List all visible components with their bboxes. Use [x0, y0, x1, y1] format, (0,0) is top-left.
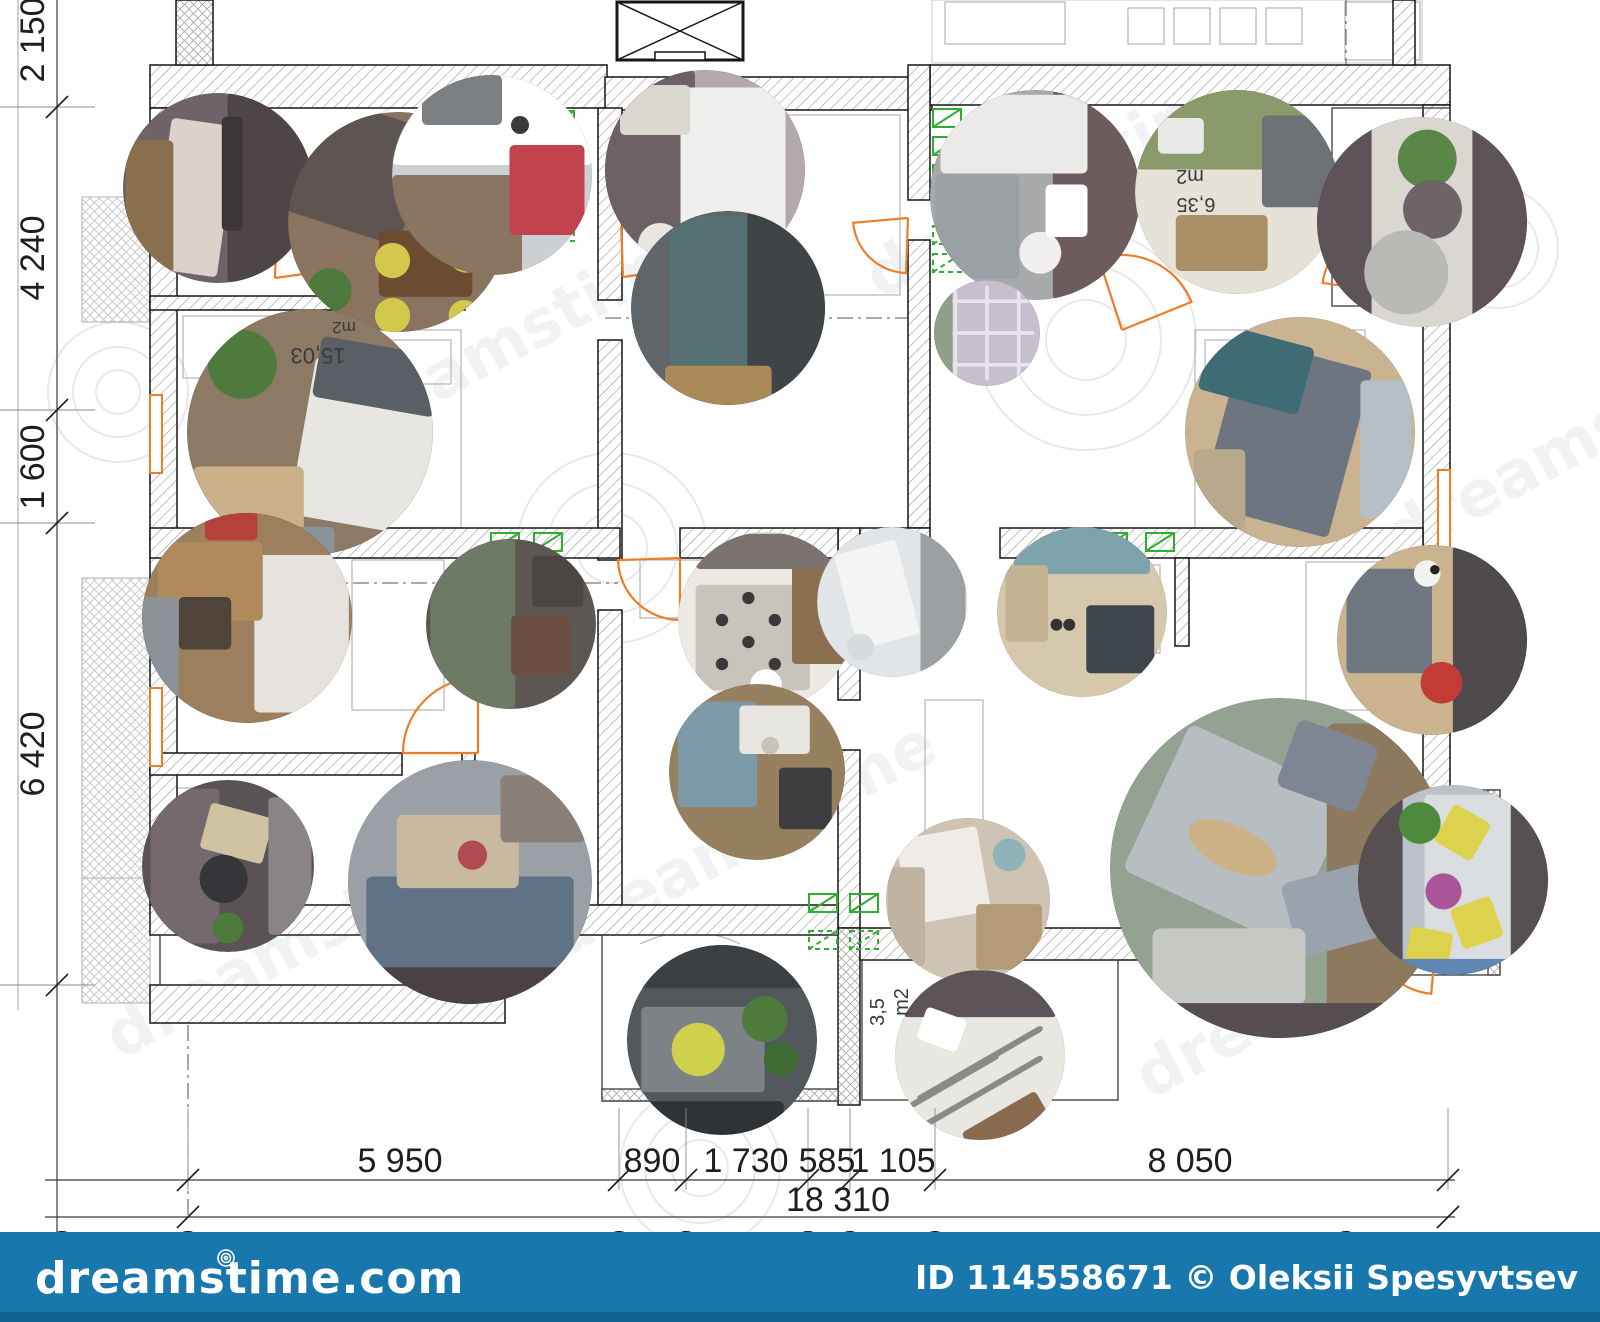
dimension-label-bottom: 8 050 [1147, 1142, 1232, 1180]
dimension-label-bottom: 1 730 [703, 1142, 788, 1180]
dimension-label-bottom: 585 [799, 1142, 856, 1180]
dimension-total-label: 18 310 [786, 1181, 890, 1219]
room-photo-inset-balcony-plant [1309, 117, 1536, 327]
dimension-label-left: 4 240 [14, 215, 52, 300]
dimension-label-bottom: 890 [624, 1142, 681, 1180]
image-credit: ID 114558671 © Oleksii Spesyvtsev [915, 1258, 1578, 1297]
room-photo-inset-kitchen-blue [669, 684, 845, 860]
room-photo-inset-tile-corner [931, 280, 1040, 386]
room-area-label: m2 [891, 988, 913, 1016]
room-photo-inset-hallway-dark [123, 93, 313, 283]
room-photo-inset-bedroom-right [1185, 317, 1415, 547]
room-area-label: 3,5 [867, 998, 889, 1026]
room-area-label: 15,03 [290, 343, 345, 368]
dimension-label-bottom: 5 950 [357, 1142, 442, 1180]
vent-symbol [933, 109, 961, 127]
floorplan-screenshot: dreamstimedreamstimedreamstimedreamstime… [0, 0, 1600, 1322]
floorplan-canvas: dreamstimedreamstimedreamstimedreamstime… [0, 0, 1600, 1322]
dimension-label-left: 2 150 [14, 0, 52, 83]
room-photo-inset-kitchen-white-red [392, 75, 592, 275]
room-area-label: 6,35 [1177, 193, 1216, 215]
room-photo-inset-kids-room [1337, 545, 1529, 735]
room-photo-inset-balcony-terrace-dark [627, 936, 817, 1135]
room-photo-inset-terrace-pergola [895, 970, 1065, 1159]
room-photo-inset-bedroom-beige [886, 818, 1050, 982]
exterior-ledges [82, 197, 150, 1003]
room-photo-inset-bathroom-tub-small [817, 527, 967, 677]
room-photo-inset-hallway-shoes [997, 527, 1167, 697]
dimension-label-bottom: 1 105 [850, 1142, 935, 1180]
watermark-bar: dreamstime.com ID 114558671 © Oleksii Sp… [0, 1232, 1600, 1322]
room-area-label: m2 [1176, 165, 1204, 187]
dimension-label-left: 6 420 [14, 711, 52, 796]
room-photo-inset-wardrobe-dark [426, 539, 596, 709]
room-area-label: m2 [332, 318, 356, 337]
room-photo-inset-reading-corner [142, 780, 314, 952]
room-photo-inset-living-room-blue [348, 760, 592, 1016]
elevator-shaft [617, 2, 743, 60]
dimension-label-left: 1 600 [14, 424, 52, 509]
dreamstime-logo: dreamstime.com [35, 1253, 464, 1304]
room-photo-inset-shower-room [631, 211, 825, 409]
left-dimension-chain: 2 1504 2401 6006 420 [0, 0, 95, 1240]
